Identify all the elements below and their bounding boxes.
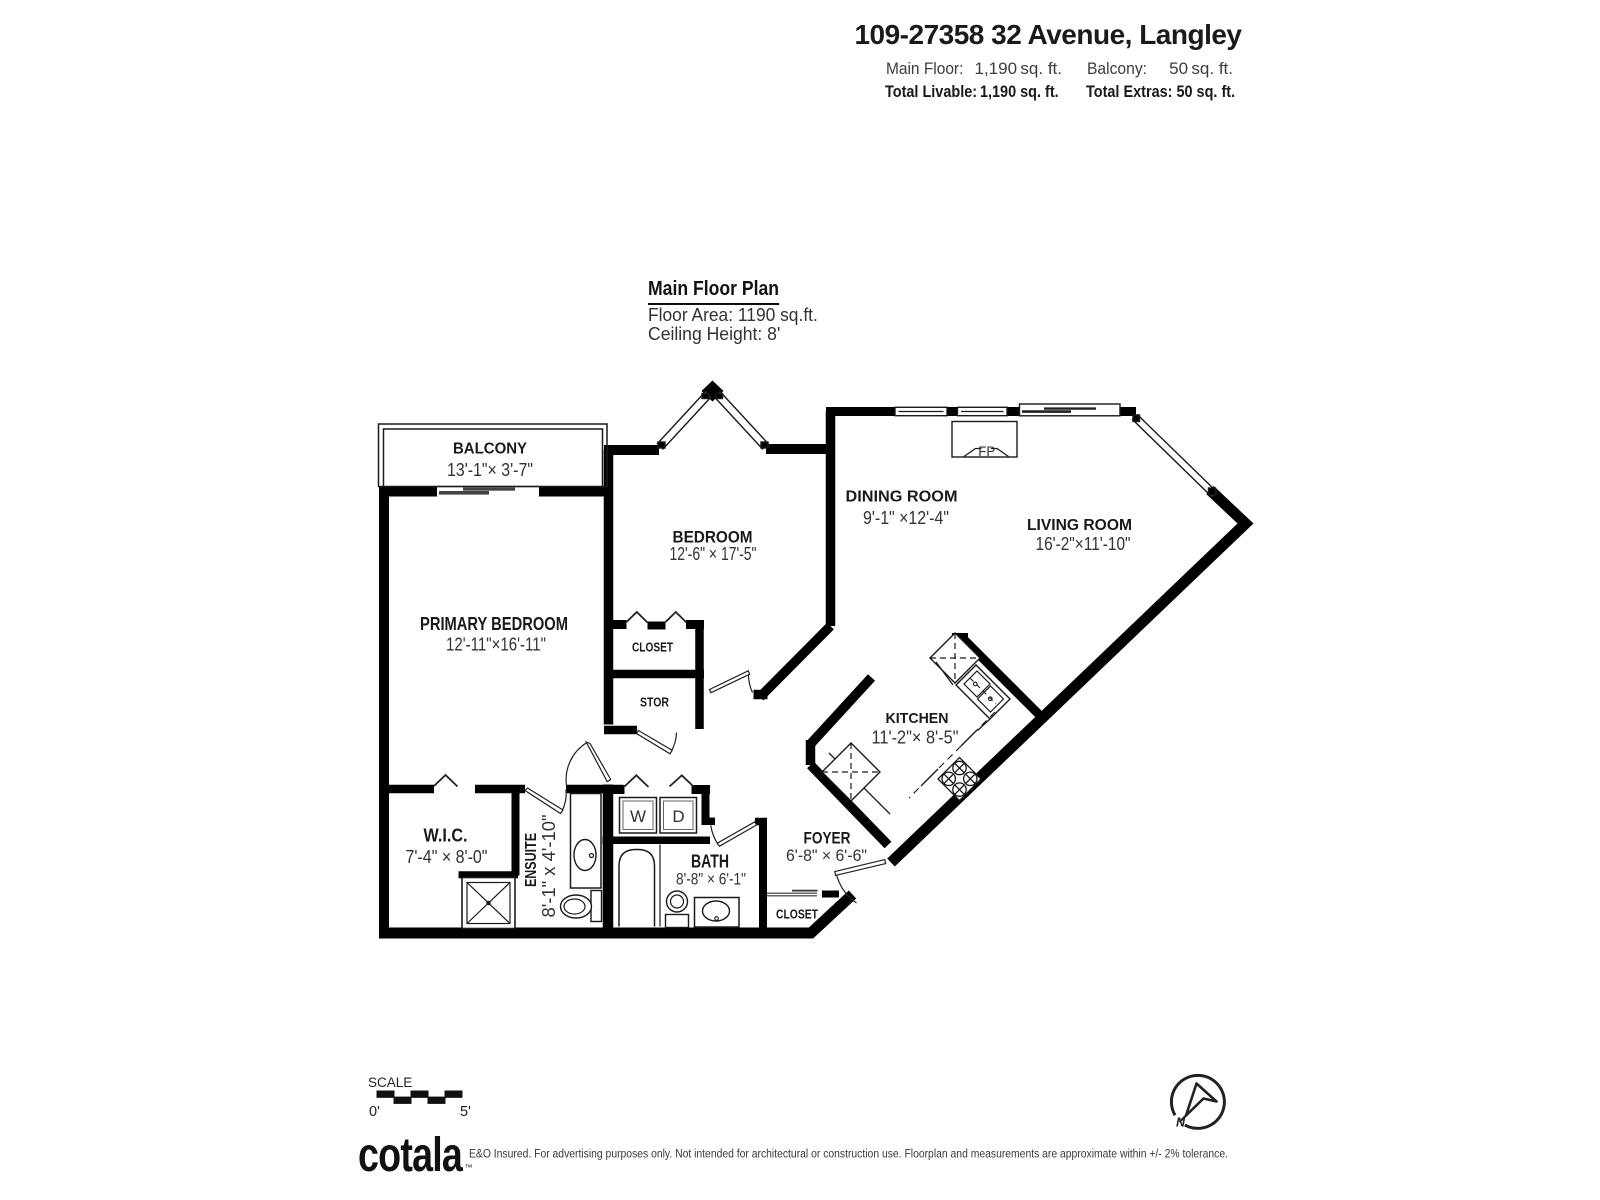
svg-text:PRIMARY BEDROOM: PRIMARY BEDROOM <box>420 614 568 634</box>
svg-text:6'-8" × 6'-6": 6'-8" × 6'-6" <box>786 846 867 865</box>
svg-text:12'-6" × 17'-5": 12'-6" × 17'-5" <box>670 544 757 564</box>
svg-text:E&O Insured. For advertising p: E&O Insured. For advertising purposes on… <box>469 1147 1228 1161</box>
svg-text:W: W <box>630 807 646 826</box>
svg-text:12'-11"×16'-11": 12'-11"×16'-11" <box>446 634 546 655</box>
svg-text:7'-4" × 8'-0": 7'-4" × 8'-0" <box>406 847 488 867</box>
svg-text:0': 0' <box>369 1104 380 1120</box>
svg-text:13'-1"× 3'-7": 13'-1"× 3'-7" <box>447 460 533 480</box>
svg-text:KITCHEN: KITCHEN <box>886 710 949 727</box>
svg-text:CLOSET: CLOSET <box>776 907 818 922</box>
svg-text:STOR: STOR <box>640 695 669 710</box>
svg-text:9'-1" ×12'-4": 9'-1" ×12'-4" <box>863 508 949 528</box>
svg-text:ENSUITE: ENSUITE <box>523 833 540 887</box>
svg-text:D: D <box>672 807 684 826</box>
svg-text:FOYER: FOYER <box>804 830 851 848</box>
svg-text:cotala: cotala <box>358 1129 463 1182</box>
svg-text:LIVING ROOM: LIVING ROOM <box>1027 517 1132 534</box>
svg-text:CLOSET: CLOSET <box>632 640 673 655</box>
svg-text:8'-1" x 4'-10": 8'-1" x 4'-10" <box>539 815 559 918</box>
svg-text:16'-2"×11'-10": 16'-2"×11'-10" <box>1036 534 1131 554</box>
svg-text:™: ™ <box>465 1163 473 1172</box>
svg-text:11'-2"× 8'-5": 11'-2"× 8'-5" <box>872 728 959 748</box>
svg-text:FP: FP <box>978 443 995 459</box>
svg-text:N: N <box>1176 1116 1186 1130</box>
svg-text:BALCONY: BALCONY <box>453 441 527 458</box>
svg-text:8'-8" × 6'-1": 8'-8" × 6'-1" <box>676 870 746 889</box>
svg-text:SCALE: SCALE <box>368 1075 412 1090</box>
svg-text:5': 5' <box>460 1104 471 1120</box>
svg-text:DINING ROOM: DINING ROOM <box>846 489 958 506</box>
svg-text:W.I.C.: W.I.C. <box>424 826 468 846</box>
svg-text:BATH: BATH <box>691 852 729 872</box>
